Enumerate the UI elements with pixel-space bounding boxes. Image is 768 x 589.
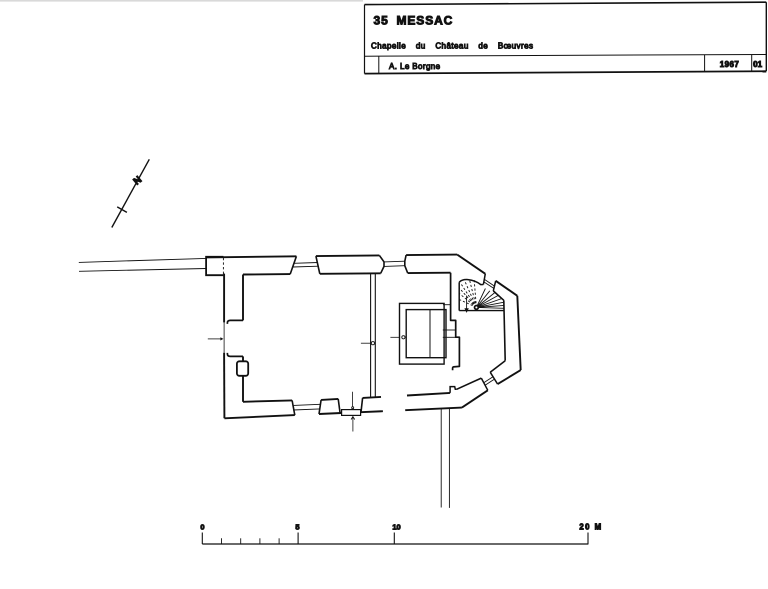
svg-text:N: N <box>132 174 145 187</box>
svg-text:Chapelle du Château de Bœuvres: Chapelle du Château de Bœuvres <box>371 42 533 51</box>
svg-text:0: 0 <box>200 523 204 532</box>
svg-text:10: 10 <box>392 523 400 532</box>
svg-text:01: 01 <box>753 60 762 69</box>
svg-text:A. Le Borgne: A. Le Borgne <box>389 62 441 71</box>
svg-text:5: 5 <box>295 523 299 532</box>
svg-text:20 M: 20 M <box>579 523 602 532</box>
svg-text:MESSAC: MESSAC <box>397 14 454 28</box>
svg-text:35: 35 <box>374 14 389 28</box>
svg-text:1967: 1967 <box>720 60 740 69</box>
